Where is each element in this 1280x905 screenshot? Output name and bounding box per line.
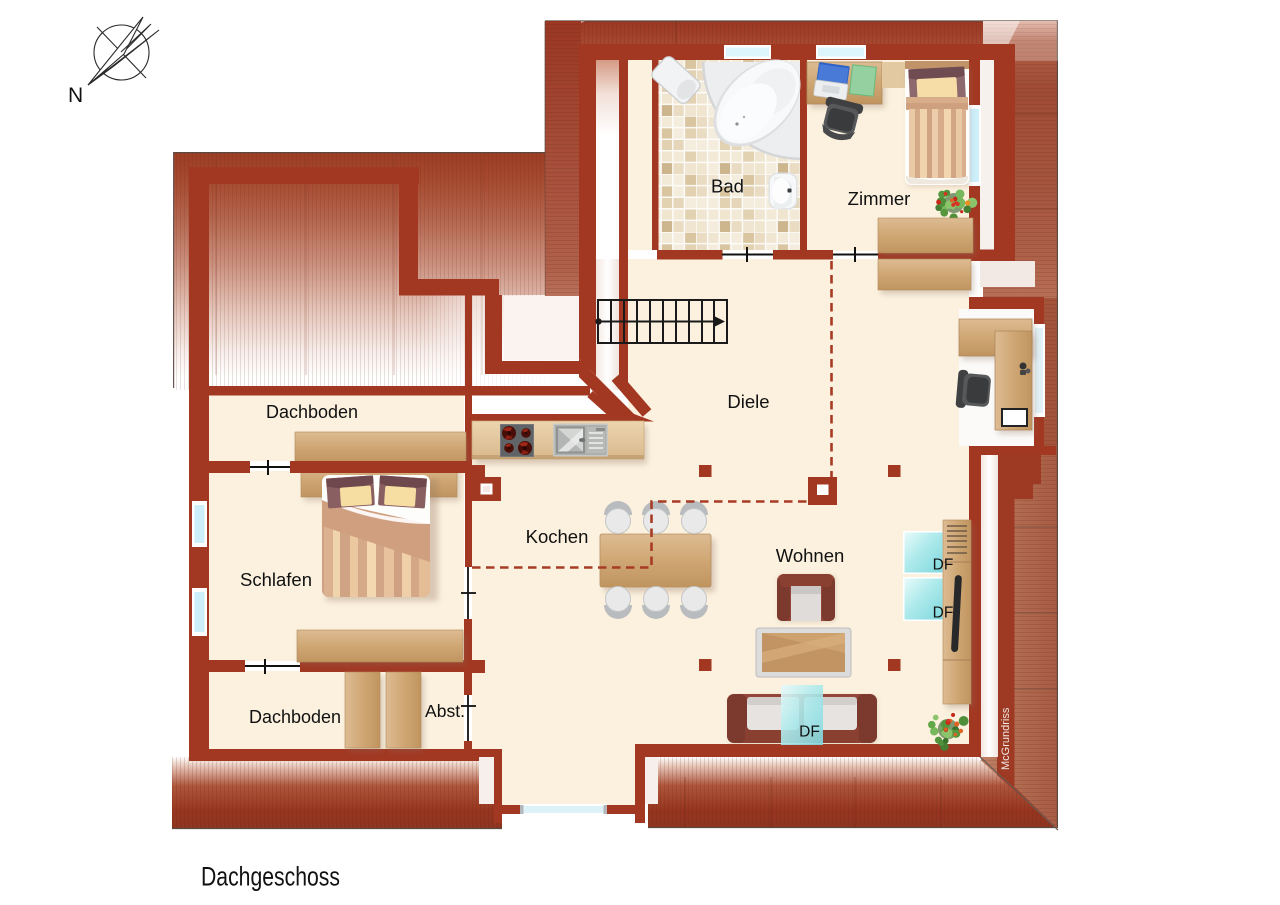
svg-text:Abst.: Abst. [425,701,465,721]
svg-text:Wohnen: Wohnen [776,545,845,566]
svg-text:Zimmer: Zimmer [848,188,911,209]
svg-text:Dachboden: Dachboden [249,706,341,727]
svg-text:DF: DF [799,724,820,741]
svg-text:N: N [68,84,83,107]
svg-text:Dachboden: Dachboden [266,401,358,422]
svg-text:DF: DF [933,605,954,622]
svg-text:Diele: Diele [727,391,769,412]
svg-text:DF: DF [933,557,954,574]
svg-text:McGrundriss: McGrundriss [1000,707,1012,770]
svg-text:Schlafen: Schlafen [240,569,312,590]
svg-text:Dachgeschoss: Dachgeschoss [201,862,340,892]
svg-text:Bad: Bad [711,176,744,197]
svg-text:Kochen: Kochen [526,526,589,547]
